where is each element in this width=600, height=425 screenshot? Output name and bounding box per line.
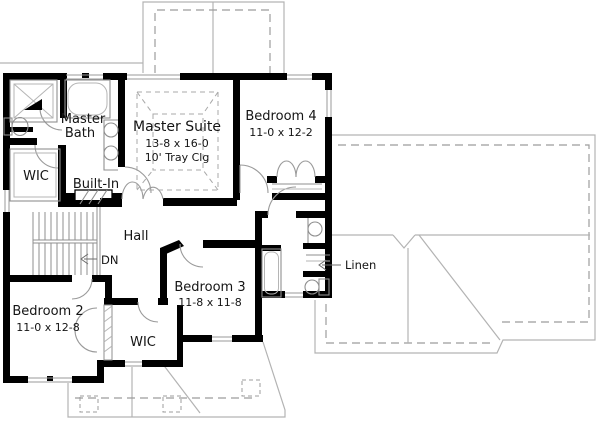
down-arrow-icon (81, 254, 97, 264)
label-master-suite: Master Suite (133, 119, 221, 135)
vanity-sinks-icon (104, 120, 118, 170)
label-bedroom2: Bedroom 2 (12, 304, 83, 319)
closet-divider-hatch (104, 305, 112, 360)
label-bedroom3-dims: 11-8 x 11-8 (178, 296, 241, 309)
label-linen: Linen (345, 258, 376, 272)
label-wic-master: WIC (23, 169, 49, 184)
label-bedroom4-dims: 11-0 x 12-2 (249, 126, 312, 139)
roof-outlines (0, 2, 595, 417)
floor-plan-drawing: Master Bath WIC Built-In Master Suite 13… (0, 0, 600, 425)
label-built-in: Built-In (73, 177, 119, 192)
label-master-bath-1: Master (61, 112, 106, 127)
floor-plan: Master Bath WIC Built-In Master Suite 13… (0, 0, 600, 425)
bathtub-hallbath-icon (262, 249, 281, 297)
label-bedroom3: Bedroom 3 (174, 280, 245, 295)
label-bedroom4: Bedroom 4 (245, 109, 316, 124)
closet-shelf-bed4-icon (272, 184, 322, 189)
label-wic-bedroom3: WIC (130, 335, 156, 350)
label-master-suite-dims: 13-8 x 16-0 (145, 137, 208, 150)
label-dn: DN (101, 253, 118, 267)
label-master-bath-2: Bath (65, 126, 95, 141)
label-bedroom2-dims: 11-0 x 12-8 (16, 321, 79, 334)
label-hall: Hall (124, 229, 149, 244)
shower-icon (10, 80, 57, 122)
stairs (33, 207, 100, 275)
sink-hallbath-icon (308, 218, 322, 243)
label-master-suite-note: 10' Tray Clg (145, 151, 210, 164)
